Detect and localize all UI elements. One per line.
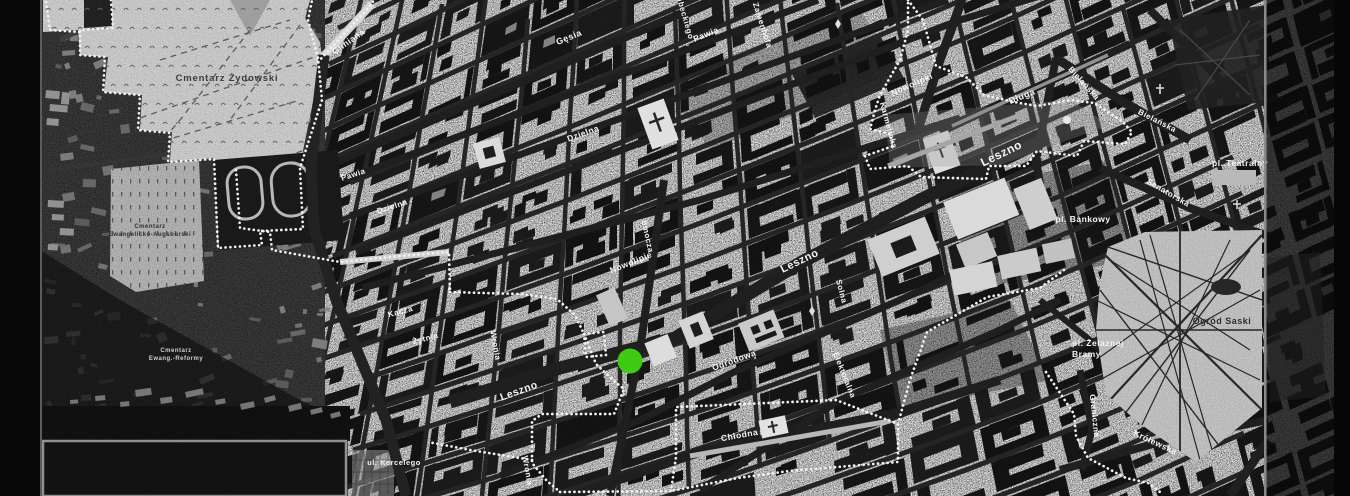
svg-text:Bramy: Bramy [1072, 349, 1101, 359]
svg-text:ul. Kercelego: ul. Kercelego [367, 458, 421, 467]
svg-text:Cmentarz: Cmentarz [134, 224, 165, 230]
svg-text:pl. Teatralny: pl. Teatralny [1212, 158, 1268, 168]
svg-text:Cmentarz Żydowski: Cmentarz Żydowski [176, 73, 279, 84]
svg-text:Ewang.-Reformy: Ewang.-Reformy [149, 356, 204, 362]
svg-text:Cmentarz: Cmentarz [160, 348, 191, 354]
svg-text:pl. Bankowy: pl. Bankowy [1055, 214, 1110, 224]
svg-text:pl. Żelaznej: pl. Żelaznej [1072, 338, 1124, 348]
svg-text:Ewangelicko-Augsburski: Ewangelicko-Augsburski [109, 232, 191, 238]
svg-text:Ogród Saski: Ogród Saski [1193, 316, 1252, 326]
